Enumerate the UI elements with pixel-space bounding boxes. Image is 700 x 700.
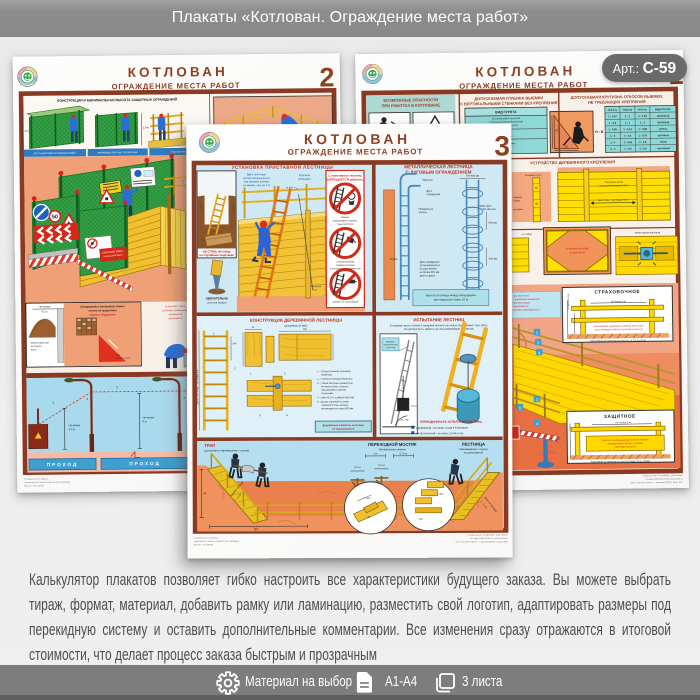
svg-text:Н=1,5 м: Н=1,5 м: [608, 109, 617, 112]
svg-text:Не менее: Не менее: [143, 415, 155, 419]
svg-text:только за пределами: только за пределами: [88, 309, 117, 312]
svg-text:металлической - не реже 1 раза: металлической - не реже 1 раза в год: [416, 431, 463, 435]
svg-text:неслежавшийся насыпной: неслежавшийся насыпной: [492, 117, 521, 120]
svg-text:материалов: материалов: [169, 313, 183, 316]
svg-text:Художники В.П. Гаманов, редакт: Художники В.П. Гаманов, редактор А.В. Но…: [194, 540, 240, 543]
svg-text:ВИД ГРУНТА: ВИД ГРУНТА: [655, 108, 671, 111]
svg-text:1 : 0,5: 1 : 0,5: [639, 147, 647, 150]
svg-text:Тел./факс (495) 452-29-25, www: Тел./факс (495) 452-29-25, www.gasznak.r…: [645, 477, 683, 480]
svg-text:3: 3: [494, 130, 510, 161]
svg-text:Инвентарная распорка: Инвентарная распорка: [635, 231, 661, 234]
svg-text:1 : 0: 1 : 0: [610, 141, 616, 144]
svg-text:Деревянные элементы лестницы: Деревянные элементы лестницы: [322, 424, 364, 427]
svg-text:запрещается: запрещается: [168, 317, 183, 320]
svg-text:Не более 6 м: Не более 6 м: [611, 300, 626, 303]
svg-text:допускать размещение: допускать размещение: [163, 309, 189, 312]
svg-text:транспортеров: транспортеров: [337, 223, 354, 226]
svg-text:Мелкозернистый: Мелкозернистый: [31, 341, 50, 344]
svg-text:упор или башмак: упор или башмак: [207, 301, 227, 304]
svg-text:2: 2: [536, 331, 538, 335]
svg-text:...в стойке: ...в стойке: [521, 233, 533, 236]
svg-text:прикрепленная: прикрепленная: [383, 344, 397, 346]
svg-text:друг от друга: друг от друга: [420, 274, 436, 277]
svg-text:ЗАЩИТНОЕ: ЗАЩИТНОЕ: [604, 414, 636, 419]
svg-text:перепада по высоте: перепада по высоте: [615, 446, 637, 448]
svg-text:супесь: супесь: [659, 128, 668, 131]
svg-text:МЕТАЛЛИЧЕСКАЯ ЛЕСТНИЦА: МЕТАЛЛИЧЕСКАЯ ЛЕСТНИЦА: [404, 164, 473, 169]
svg-text:Тел./факс (495) 452-29-25, www: Тел./факс (495) 452-29-25, www.gasznak.r…: [470, 537, 508, 540]
svg-text:4: 4: [538, 351, 540, 355]
svg-text:В зоне мест работ: В зоне мест работ: [165, 305, 186, 308]
svg-text:• границы перепада высот: • границы перепада высот: [512, 309, 541, 311]
svg-text:4 - гайка М 10 с шайбой 3х33: 4 - гайка М 10 с шайбой 3х33 мм;: [317, 396, 354, 399]
svg-text:грунт: грунт: [31, 349, 38, 351]
svg-text:2 - ступени сечением 40х35 мм: 2 - ступени сечением 40х35 мм;: [317, 378, 353, 381]
svg-text:для отдыха не более 10 м: для отдыха не более 10 м: [434, 297, 468, 301]
svg-text:• знак или плакат: • знак или плакат: [511, 302, 530, 304]
svg-text:призмы обрушения: призмы обрушения: [89, 312, 116, 316]
svg-text:Осыпная: Осыпная: [299, 173, 311, 177]
svg-text:Верх лестницы: Верх лестницы: [247, 172, 266, 176]
svg-text:(размеры в мм): (размеры в мм): [284, 324, 307, 328]
svg-text:Не менее 0,15 м: Не менее 0,15 м: [525, 175, 542, 177]
svg-text:• трос или лента: • трос или лента: [511, 295, 529, 297]
svg-text:ОАО "СпецТехно проект" — Лицен: ОАО "СпецТехно проект" — Лицензия ДЕГВ-П…: [456, 540, 508, 543]
svg-text:не допускается): не допускается): [464, 450, 483, 454]
svg-text:СТРАХОВОЧНОЕ: СТРАХОВОЧНОЕ: [594, 289, 640, 295]
svg-text:КОТЛОВАН: КОТЛОВАН: [128, 64, 228, 80]
svg-text:не histone: не histone: [31, 345, 42, 348]
svg-text:2 м: 2 м: [24, 129, 28, 133]
svg-text:не окрашиваются: не окрашиваются: [332, 428, 354, 431]
svg-text:ТРАП: ТРАП: [204, 443, 215, 448]
svg-text:НЕ ТРЕБУЮЩИХ КРЕПЛЕНИЯ: НЕ ТРЕБУЮЩИХ КРЕПЛЕНИЯ: [588, 99, 646, 105]
svg-text:1 : 0,25: 1 : 0,25: [608, 128, 617, 131]
svg-text:с 300: с 300: [437, 493, 444, 496]
svg-text:Опорная: Опорная: [513, 197, 523, 199]
svg-text:ЛЕСТНИЦА: ЛЕСТНИЦА: [462, 442, 485, 447]
svg-text:800 мм: 800 мм: [489, 222, 498, 225]
svg-text:естеств. откоса: естеств. откоса: [116, 358, 131, 360]
svg-text:Распорные устоя: Распорные устоя: [605, 182, 624, 184]
svg-text:6 м: 6 м: [143, 419, 147, 423]
svg-text:Складировать материалы можно: Складировать материалы можно: [80, 304, 125, 308]
svg-text:1 : 0,25: 1 : 0,25: [624, 141, 633, 144]
svg-text:5,0 м: 5,0 м: [69, 427, 75, 431]
svg-text:2Н: 2Н: [254, 527, 259, 531]
svg-text:КОТЛОВАН: КОТЛОВАН: [475, 63, 575, 79]
svg-text:Не более 6 м: Не более 6 м: [616, 421, 631, 424]
svg-text:1 : 1: 1 : 1: [640, 121, 646, 124]
svg-text:© Издательство "ГАСЗНАНИЕ", 20: © Издательство "ГАСЗНАНИЕ", 2008, Москва: [468, 534, 509, 537]
svg-text:1,6 м: 1,6 м: [143, 125, 149, 129]
svg-text:Верстка : А.В. Орлова: Верстка : А.В. Орлова: [24, 484, 44, 487]
svg-text:1 : 0,5: 1 : 0,5: [624, 148, 632, 151]
svg-text:1 : 0: 1 : 0: [610, 148, 616, 151]
svg-text:ПРОХОД: ПРОХОД: [129, 461, 160, 466]
svg-text:2: 2: [319, 62, 334, 92]
svg-text:Веревка,: Веревка,: [386, 341, 395, 343]
svg-text:1 : 0,5: 1 : 0,5: [639, 141, 647, 144]
svg-text:по диагонали: по диагонали: [569, 251, 585, 254]
svg-text:насыпной: насыпной: [657, 115, 670, 118]
svg-text:5 м: 5 м: [313, 289, 317, 292]
svg-text:Верстка : А.В. Орлова: Верстка : А.В. Орлова: [194, 543, 214, 546]
svg-text:1 : 0,5: 1 : 0,5: [609, 122, 617, 125]
svg-text:ограждения: ограждения: [427, 193, 441, 196]
svg-text:с сигнальной разметкой;: с сигнальной разметкой;: [513, 298, 540, 301]
svg-text:1 : 1: 1 : 1: [625, 115, 631, 118]
svg-text:Шаг стоек — не более 1,5 м: Шаг стоек — не более 1,5 м: [598, 200, 628, 202]
svg-text:ОАО "СпецТехно проект" — Лицен: ОАО "СпецТехно проект" — Лицензия ДЕГВ-П…: [631, 481, 683, 485]
svg-text:КОНСТРУКЦИЯ ДЕРЕВЯННОЙ ЛЕСТНИЦ: КОНСТРУКЦИЯ ДЕРЕВЯННОЙ ЛЕСТНИЦЫ: [250, 318, 342, 323]
svg-text:0,15 м: 0,15 м: [378, 465, 385, 467]
svg-text:над бровкой выемки: над бровкой выемки: [244, 179, 270, 183]
svg-text:1 м: 1 м: [373, 451, 377, 455]
svg-text:ЗАПРЕЩАЕТСЯ работать:: ЗАПРЕЩАЕТСЯ работать:: [326, 177, 364, 181]
svg-text:120 кг: 120 кг: [411, 406, 417, 408]
svg-text:ПЕРИОДИЧНОСТЬ ИСПЫТАНИЯ ЛЕСТНИ: ПЕРИОДИЧНОСТЬ ИСПЫТАНИЯ ЛЕСТНИЦ:: [420, 420, 482, 424]
svg-text:Не менее: Не менее: [39, 304, 51, 308]
svg-text:© Издательство "ГАСЗНАНИЕ", 20: © Издательство "ГАСЗНАНИЕ", 2008, Москва: [643, 474, 684, 478]
svg-text:1 : 0,5: 1 : 0,5: [624, 135, 632, 138]
svg-text:ПРИ РАБОТАХ В КОТЛОВАНЕ: ПРИ РАБОТАХ В КОТЛОВАНЕ: [382, 102, 441, 108]
svg-text:Поручни: Поручни: [422, 179, 432, 182]
svg-text:1 : 0: 1 : 0: [610, 135, 616, 138]
svg-text:к лестнице: к лестнице: [385, 347, 396, 349]
svg-text:МЕСТА МАССОВОГО ПРОХОДА ЛЮДЕЙ: МЕСТА МАССОВОГО ПРОХОДА ЛЮДЕЙ: [34, 152, 76, 155]
svg-text:на случайные подставки: на случайные подставки: [199, 253, 234, 257]
svg-text:глина: глина: [660, 141, 668, 144]
svg-text:50: 50: [52, 215, 58, 221]
svg-text:не менее, чем на 1 м: не менее, чем на 1 м: [243, 183, 270, 187]
svg-text:КОТЛОВАН: КОТЛОВАН: [304, 131, 411, 147]
svg-text:Составитель Ю.А. Федотов: Составитель Ю.А. Федотов: [194, 536, 218, 539]
svg-text:стойка: стойка: [513, 199, 521, 202]
svg-text:полосы: полосы: [419, 211, 428, 214]
svg-text:40х60 мм;: 40х60 мм;: [321, 373, 332, 376]
svg-text:Составитель Ю.А. Федотов: Составитель Ю.А. Федотов: [24, 477, 48, 480]
svg-text:распорка: распорка: [513, 209, 523, 211]
svg-text:ступенями;: ступенями;: [321, 392, 334, 395]
svg-text:1 : 1: 1 : 1: [625, 122, 631, 125]
svg-text:Минимальная ширина: Минимальная ширина: [379, 447, 406, 451]
svg-text:4: 4: [536, 422, 538, 426]
svg-text:Художники В.П. Гаманов, редакт: Художники В.П. Гаманов, редактор А.В. Но…: [24, 481, 70, 484]
svg-text:лессовый: лессовый: [657, 147, 670, 150]
svg-text:безопасности;: безопасности;: [513, 306, 529, 308]
svg-text:Не менее 1,1 м: Не менее 1,1 м: [568, 293, 570, 309]
svg-text:Тетива: Тетива: [390, 258, 399, 261]
svg-text:150: 150: [419, 518, 424, 521]
svg-text:0,5 м: 0,5 м: [41, 309, 47, 313]
svg-text:(допускается перемещение с гру: (допускается перемещение с грузом): [204, 448, 249, 452]
svg-text:ИСПЫТАНИЕ ЛЕСТНИЦ: ИСПЫТАНИЕ ЛЕСТНИЦ: [413, 317, 465, 322]
svg-text:75 - 75°: 75 - 75°: [400, 419, 409, 422]
svg-text:1 : 1,25: 1 : 1,25: [638, 115, 647, 118]
svg-text:1 : 0,75: 1 : 0,75: [638, 134, 647, 137]
svg-text:3: 3: [536, 398, 538, 402]
svg-text:песчаный: песчаный: [657, 121, 670, 124]
svg-text:800 мм: 800 мм: [489, 258, 498, 261]
svg-text:700-800 мм: 700-800 мм: [466, 175, 480, 178]
svg-text:площадка: площадка: [298, 178, 311, 181]
svg-text:ПРОХОД: ПРОХОД: [47, 462, 78, 467]
svg-text:ПРОИЗВОДСТВЕННЫЕ ТЕРРИТОРИИ: ПРОИЗВОДСТВЕННЫЕ ТЕРРИТОРИИ: [98, 152, 138, 154]
svg-text:3: 3: [537, 341, 539, 345]
svg-text:ОБЯЗАТЕЛЬНО: ОБЯЗАТЕЛЬНО: [206, 296, 229, 300]
svg-text:1 : 0,85: 1 : 0,85: [638, 128, 647, 131]
svg-text:им устойчивости вблизи перепад: им устойчивости вблизи перепада по высот…: [595, 328, 644, 332]
svg-text:0,75 м: 0,75 м: [400, 451, 408, 455]
svg-text:ПЕРЕХОДНОЙ МОСТИК: ПЕРЕХОДНОЙ МОСТИК: [368, 442, 417, 447]
svg-text:Длина лестницы - не более 5 м: Длина лестницы - не более 5 м: [196, 369, 199, 404]
svg-text:закладной не менее 0,25 м: закладной не менее 0,25 м: [599, 184, 628, 187]
svg-text:1 : 0,67: 1 : 0,67: [623, 128, 632, 131]
svg-text:1 : 0,67: 1 : 0,67: [608, 115, 617, 118]
svg-text:ВИД ГРУНТА: ВИД ГРУНТА: [495, 110, 517, 114]
svg-text:производиться через 300 мм: производиться через 300 мм: [321, 407, 353, 410]
svg-text:с 400: с 400: [364, 497, 371, 500]
svg-text:Н=3,0 м: Н=3,0 м: [623, 109, 632, 112]
svg-text:электро- и газосваркой: электро- и газосваркой: [333, 300, 359, 303]
svg-text:Н : В: Н : В: [595, 130, 604, 134]
svg-text:Установка распорки: Установка распорки: [566, 247, 590, 250]
svg-text:0,75 м: 0,75 м: [354, 467, 361, 469]
svg-text:деревянной - не реже 1 раза в: деревянной - не реже 1 раза в 6 месяцев: [416, 426, 468, 430]
svg-text:ОГРАЖДЕНИЕ МЕСТА РАБОТ: ОГРАЖДЕНИЕ МЕСТА РАБОТ: [288, 147, 424, 156]
svg-text:Н=5,0 м: Н=5,0 м: [638, 108, 647, 111]
svg-text:Не менее: Не менее: [69, 423, 81, 427]
svg-text:суглинок: суглинок: [658, 134, 670, 137]
